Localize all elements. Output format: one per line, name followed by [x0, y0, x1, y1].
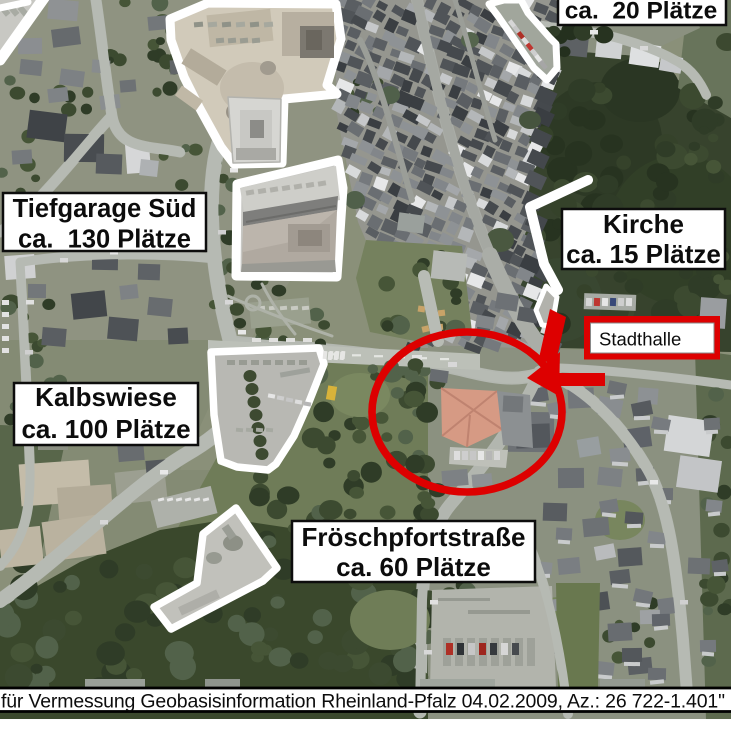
svg-text:ca. 130 Plätze: ca. 130 Plätze: [18, 226, 191, 254]
svg-text:ca. 60 Plätze: ca. 60 Plätze: [336, 552, 491, 582]
svg-text:ca. 20 Plätze: ca. 20 Plätze: [565, 0, 718, 25]
svg-text:ca. 15 Plätze: ca. 15 Plätze: [566, 239, 721, 269]
svg-text:Fröschpfortstraße: Fröschpfortstraße: [302, 522, 526, 552]
svg-text:Tiefgarage Süd: Tiefgarage Süd: [13, 195, 197, 223]
svg-text:ca. 100 Plätze: ca. 100 Plätze: [21, 414, 190, 444]
svg-text:Stadthalle: Stadthalle: [599, 329, 681, 350]
svg-text:Kirche: Kirche: [603, 209, 684, 239]
svg-text:Kalbswiese: Kalbswiese: [35, 382, 177, 412]
svg-text:für Vermessung Geobasisinforma: für Vermessung Geobasisinformation Rhein…: [1, 691, 725, 713]
